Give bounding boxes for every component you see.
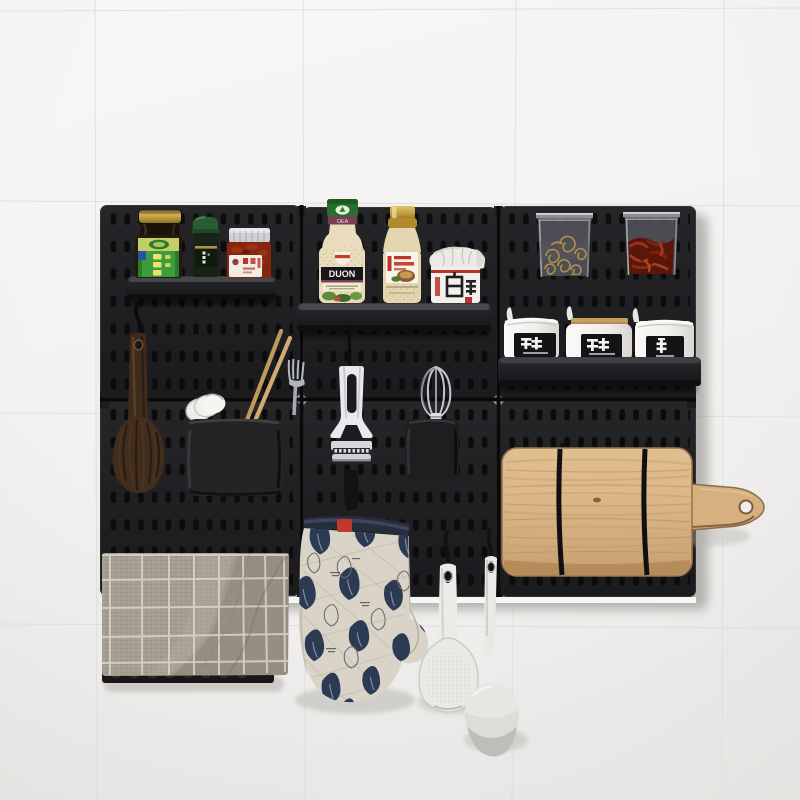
svg-text:OEA: OEA <box>337 219 349 225</box>
svg-text:DUON: DUON <box>329 269 356 279</box>
